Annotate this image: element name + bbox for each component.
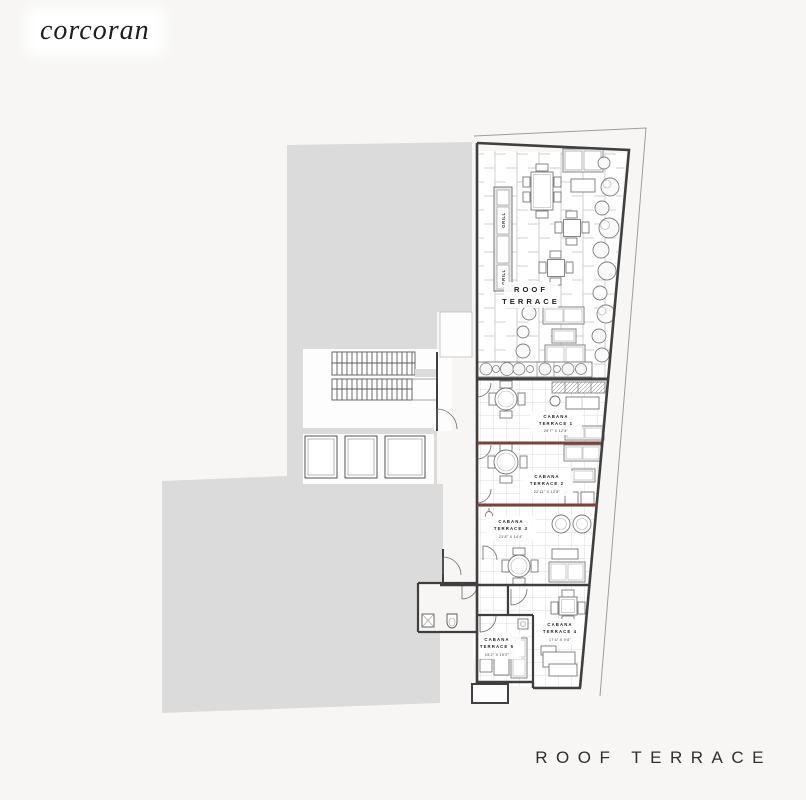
main-terrace-label-line1: ROOF [514, 285, 548, 294]
corcoran-logo: corcoran [34, 16, 156, 47]
elevator-bank [303, 428, 434, 478]
cabana-3-dimensions: 21'8" X 14'4" [499, 535, 524, 539]
cabana-4-label-line2: TERRACE 4 [543, 629, 577, 634]
passage [443, 549, 461, 583]
cabana-5-label-line2: TERRACE 5 [480, 644, 514, 649]
side-table [571, 179, 595, 192]
shower-fixture [422, 614, 434, 627]
toilet-fixture [447, 614, 457, 628]
main-terrace-label-line2: TERRACE [502, 297, 560, 306]
cabana-2-label-line1: CABANA [534, 474, 559, 479]
sheet-title: ROOF TERRACE [535, 748, 772, 768]
cabana-3-label-line2: TERRACE 3 [494, 526, 528, 531]
cabana-1-label-line1: CABANA [543, 414, 568, 419]
cabana-4-label-line1: CABANA [547, 622, 572, 627]
planter-row [478, 362, 592, 377]
grill-label-1: GRILL [501, 212, 506, 228]
cabana-2-label-line2: TERRACE 2 [530, 481, 564, 486]
cabana-1-label-line2: TERRACE 1 [539, 421, 573, 426]
cabana-5-dimensions: 15'2" X 10'2" [485, 653, 510, 657]
grill-bar: GRILL GRILL [494, 187, 512, 291]
cabana-4-dimensions: 17'4" X 9'8" [549, 638, 571, 642]
cabana-2-dimensions: 22'11" X 12'8" [534, 490, 561, 494]
floor-plan-svg: GRILL GRILL [0, 0, 806, 800]
page: corcoran [0, 0, 806, 800]
storage-boxes [563, 149, 603, 172]
cabana-5-label-line1: CABANA [484, 637, 509, 642]
cabana-3-label-line1: CABANA [498, 519, 523, 524]
roof-notch [440, 312, 472, 357]
vestibule [418, 583, 478, 632]
cabana-1-dimensions: 25'7" X 12'4" [544, 429, 569, 433]
